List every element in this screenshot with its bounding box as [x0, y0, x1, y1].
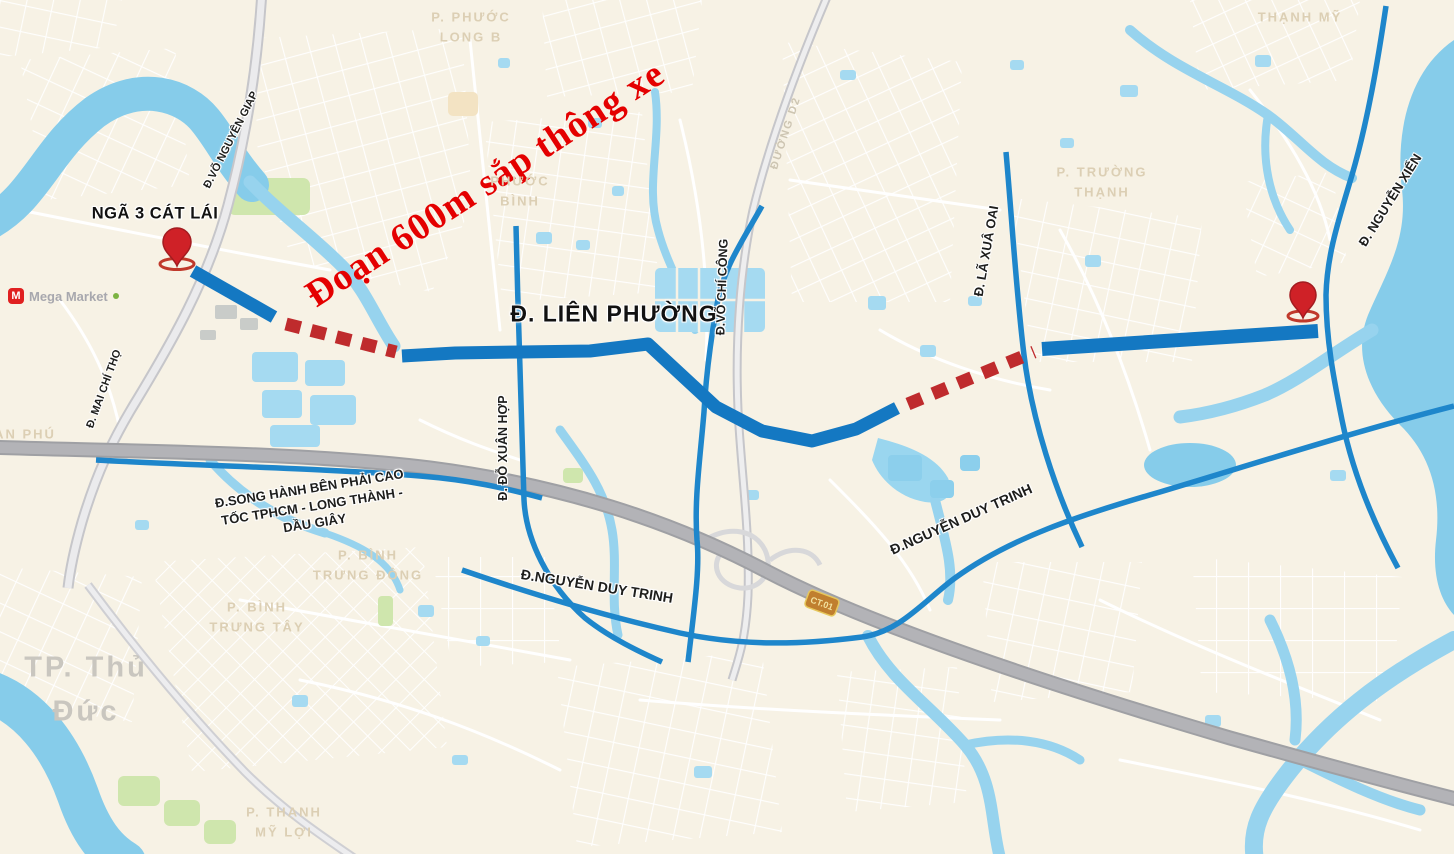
map-stage: CT.01 NGÃ 3 CÁT LÁI Đoạn 600m sắp thông … [0, 0, 1454, 854]
basemap-svg: CT.01 [0, 0, 1454, 854]
